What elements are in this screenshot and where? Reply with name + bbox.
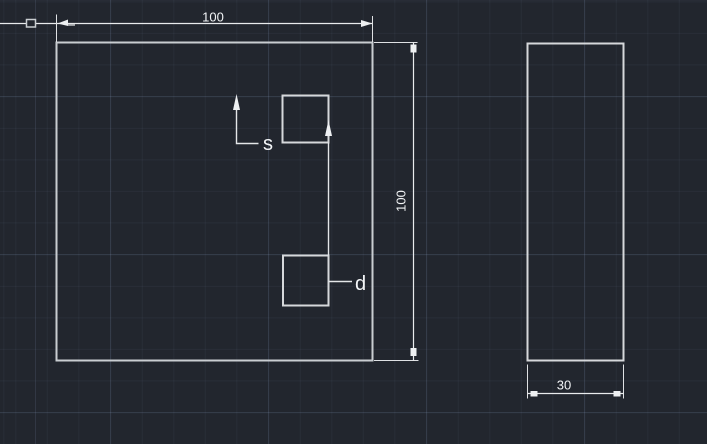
up-arrow-icon [325,120,332,136]
up-arrow-icon [233,94,240,110]
dimension-text-bottom[interactable]: 30 [557,378,571,393]
dimension-text-top[interactable]: 100 [202,10,224,25]
box-arrowhead-left [531,391,538,397]
label-d[interactable]: d [355,273,366,295]
front-view-outline[interactable] [57,43,373,361]
dimension-text-right[interactable]: 100 [394,190,409,212]
inner-square-s[interactable] [283,96,329,143]
box-arrowhead-right [614,391,621,397]
side-view [528,44,624,361]
s-annotation[interactable]: s [233,94,273,155]
dimension-right[interactable]: 100 [374,43,419,361]
s-leader-line[interactable] [237,101,259,144]
cad-viewport[interactable]: s d 100 100 [0,0,707,444]
left-arrow-icon [58,20,69,27]
box-arrowhead-top [411,45,417,53]
side-view-outline[interactable] [528,44,624,361]
right-arrow-icon [361,20,373,27]
dimension-bottom[interactable]: 30 [528,365,624,399]
d-annotation[interactable]: d [329,273,367,295]
label-s[interactable]: s [263,133,273,155]
point-marker[interactable] [27,20,36,28]
box-arrowhead-bottom [411,348,417,356]
dimension-top[interactable]: 100 [0,10,373,43]
drawing-canvas: s d 100 100 [0,0,707,444]
inner-square-d[interactable] [283,256,329,306]
front-view [57,43,373,361]
